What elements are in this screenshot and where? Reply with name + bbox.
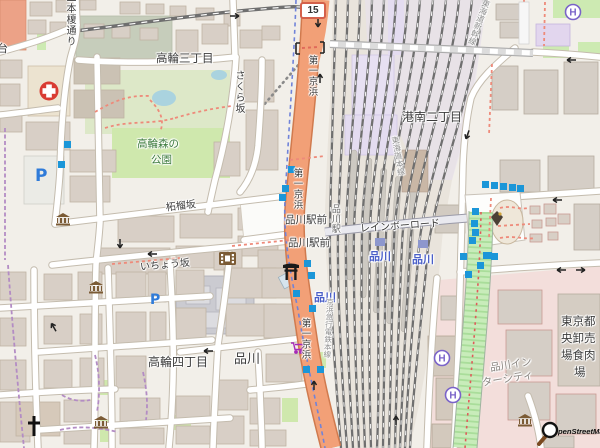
label-daiichi-keihin-north: 第一京浜: [306, 55, 316, 97]
helipad-icon: [566, 5, 581, 20]
route-15-shield: 15: [300, 2, 326, 19]
osm-magnifier-icon: [539, 423, 557, 444]
osm-attribution[interactable]: penStreetMap: [537, 416, 600, 446]
label-takanawa-3chome: 高輪三丁目: [156, 53, 214, 66]
parking-icon: P: [35, 166, 47, 186]
label-takanawa-mori-park: 高輪森の: [137, 139, 179, 151]
label-nihon-enoki-dori: 二本榎通り: [64, 0, 75, 47]
footbridge: [519, 2, 529, 44]
label-shinagawa-eki-vertical: 品川駅: [330, 204, 340, 234]
label-takanawa-4chome: 高輪四丁目: [148, 356, 208, 369]
hospital-icon: [40, 82, 59, 101]
label-shinagawa-district: 品川: [234, 352, 260, 366]
parking-icon: P: [150, 292, 160, 308]
cinema-icon: [219, 252, 236, 265]
label-jr-shinagawa-station: 品川: [369, 251, 391, 263]
label-konan-2chome: 港南二丁目: [402, 111, 462, 124]
label-daiichi-keihin-mid: 第一京浜: [291, 168, 301, 210]
helipad-icon: [446, 388, 461, 403]
label-shinagawa-station-east: 品川: [412, 254, 434, 266]
label-meat-market-3: 場食肉: [561, 350, 596, 363]
label-shinagawa-ekimae-1: 品川駅前: [285, 215, 327, 227]
label-takanawadai-partial: 台: [0, 43, 8, 55]
helipad-icon: [435, 351, 450, 366]
map-canvas[interactable]: H: [0, 0, 600, 448]
osm-attribution-text: penStreetMap: [557, 427, 600, 436]
label-shinagawa-ekimae-2: 品川駅前: [288, 238, 330, 250]
label-meat-market-1: 東京都: [561, 316, 596, 329]
label-takanawa-mori-park-2: 公園: [151, 155, 172, 167]
label-meat-market-2: 央卸売: [561, 333, 596, 346]
label-meat-market-4: 場: [574, 367, 586, 380]
label-daiichi-keihin-south: 第一京浜: [299, 318, 309, 360]
label-sakurazaka: さくら坂: [233, 70, 244, 114]
